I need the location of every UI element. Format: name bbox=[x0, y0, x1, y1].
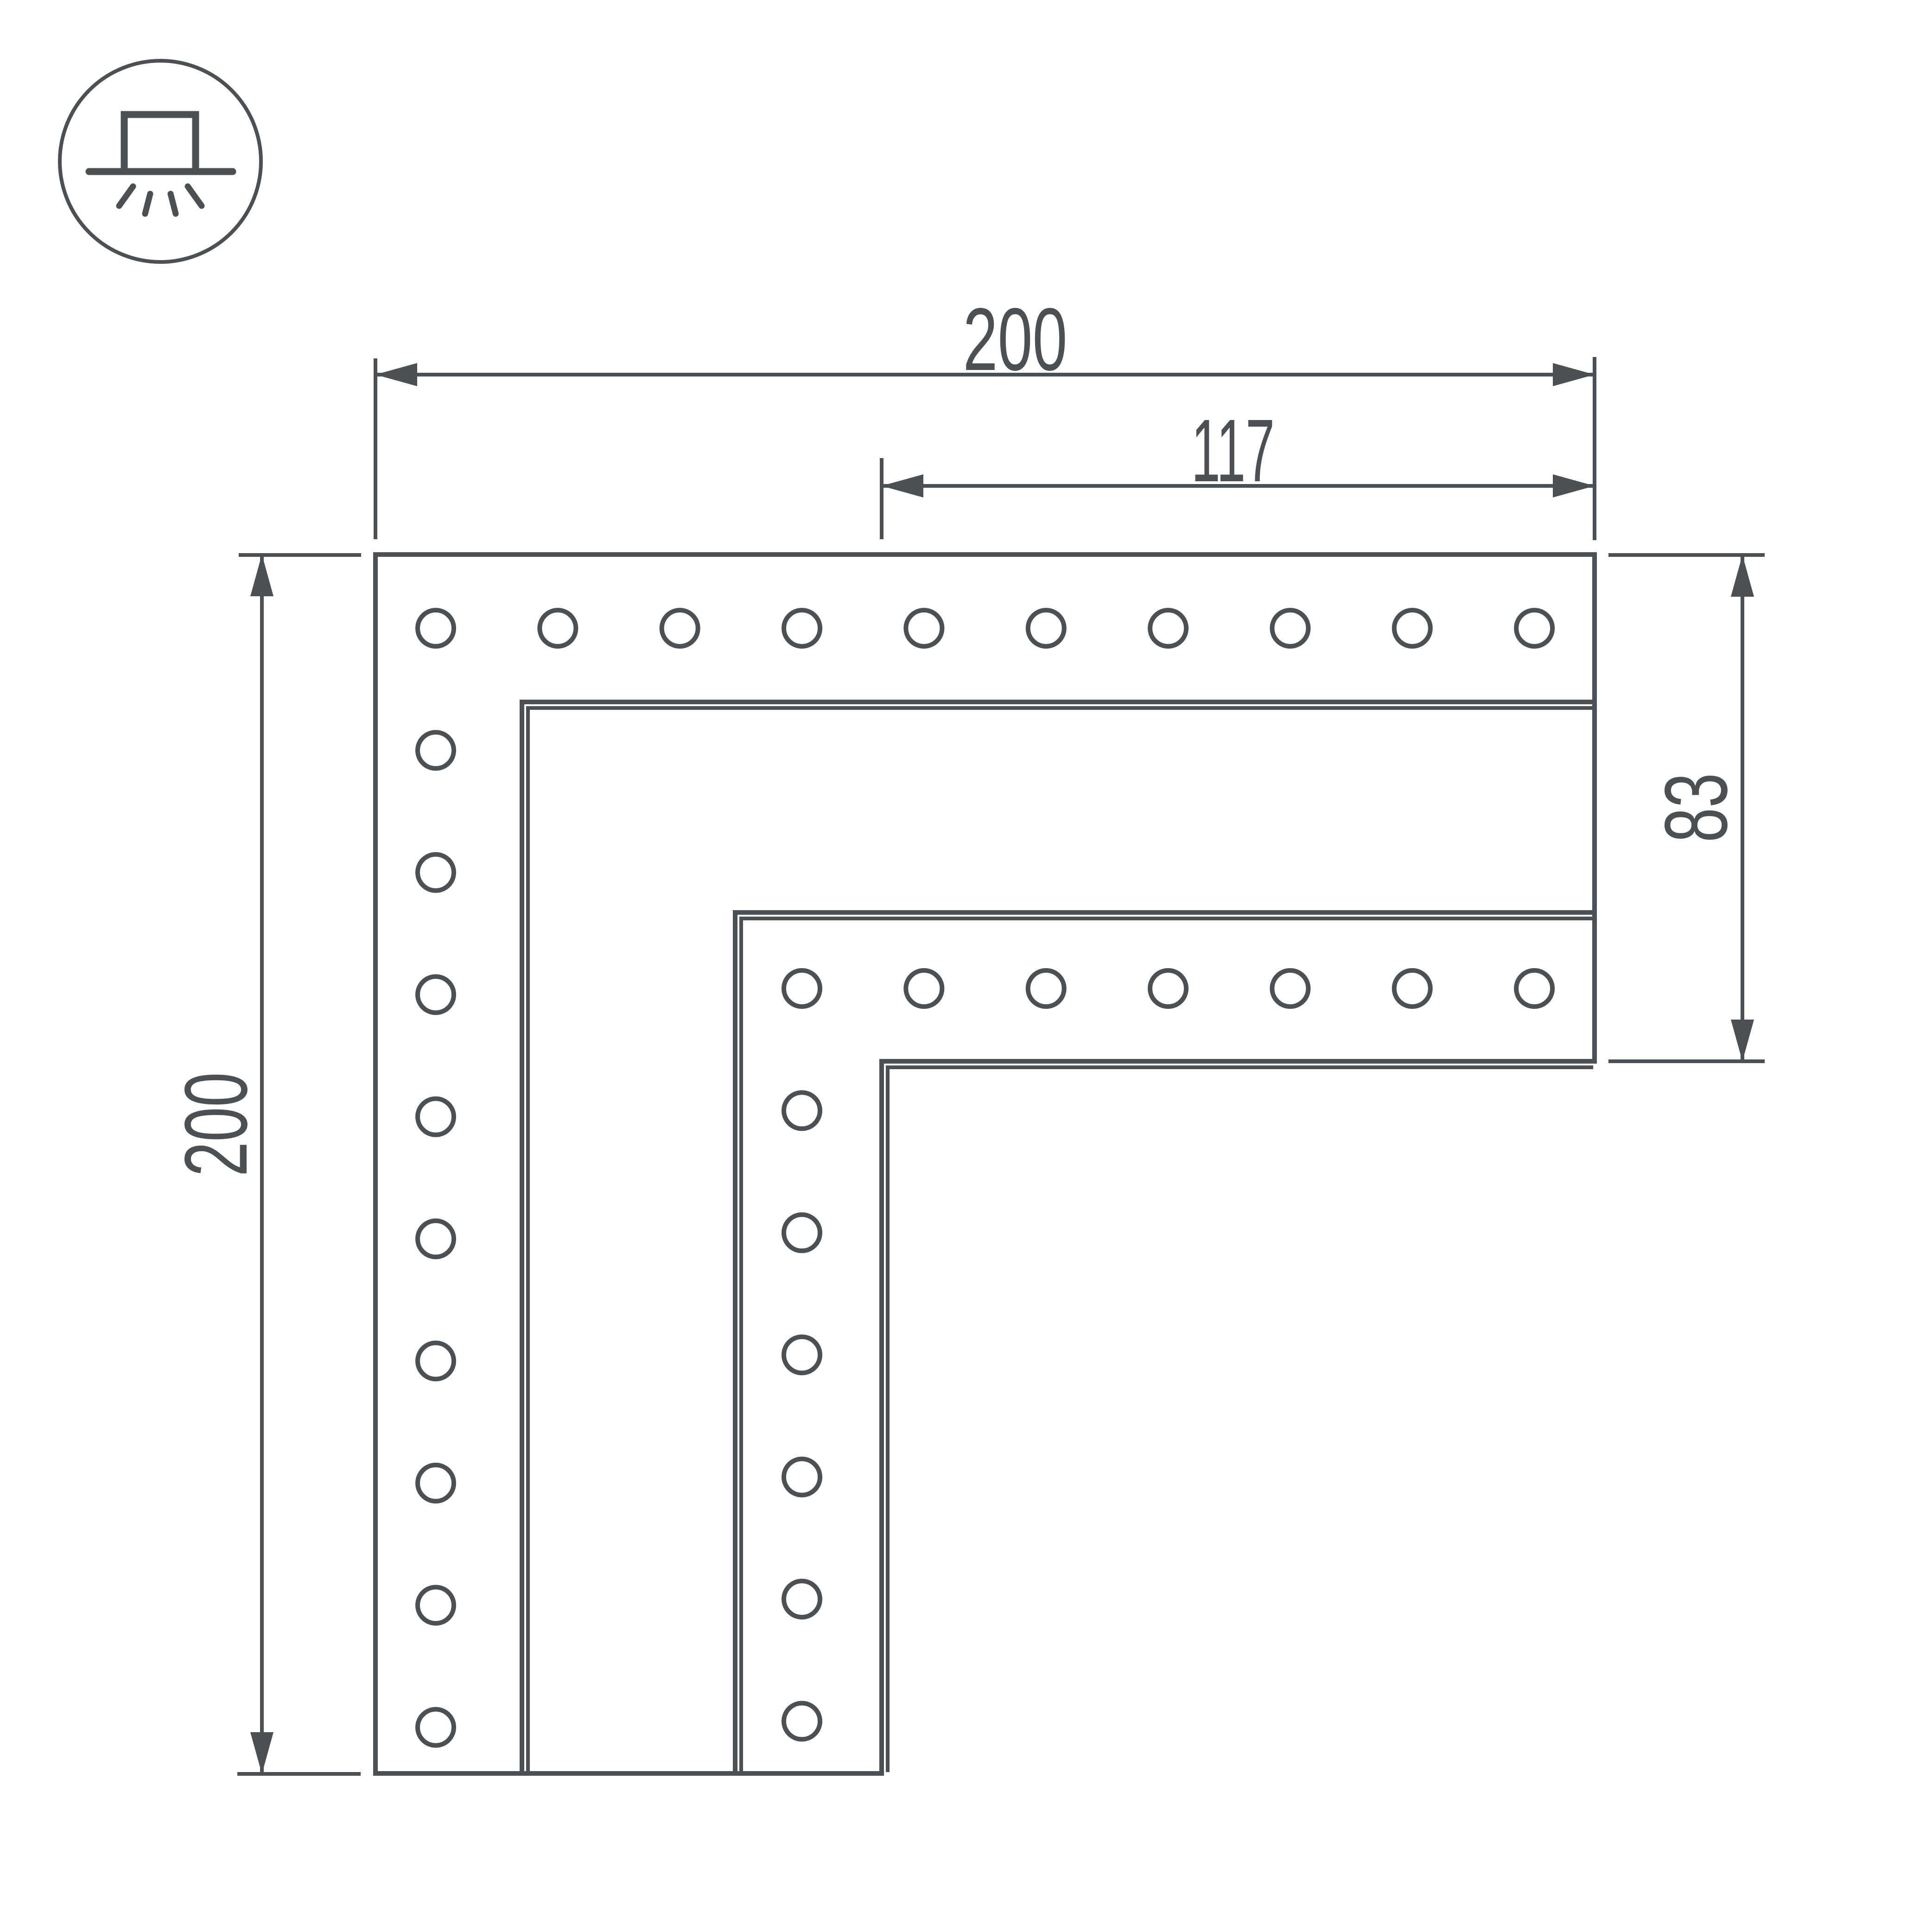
arrowhead-bottom bbox=[1731, 1020, 1754, 1061]
dimension-value-top-width: 200 bbox=[963, 289, 1068, 389]
arrowhead-top bbox=[250, 555, 273, 596]
mounting-hole bbox=[906, 970, 942, 1007]
mounting-hole bbox=[1150, 970, 1186, 1007]
dimension-left-height: 200 bbox=[166, 555, 361, 1774]
luminaire-box-icon bbox=[124, 115, 196, 172]
mounting-hole bbox=[784, 1581, 820, 1617]
mounting-hole bbox=[784, 970, 820, 1007]
mounting-hole bbox=[418, 1099, 454, 1135]
arrowhead-left bbox=[375, 363, 417, 386]
mounting-hole bbox=[1516, 970, 1552, 1007]
light-rays-icon bbox=[119, 186, 202, 214]
mounting-hole bbox=[784, 610, 820, 646]
mounting-hole bbox=[418, 732, 454, 768]
mounting-hole bbox=[1028, 610, 1064, 646]
mounting-hole bbox=[906, 610, 942, 646]
dimension-top-width: 200 bbox=[375, 289, 1595, 540]
mounting-hole bbox=[1028, 970, 1064, 1007]
dimension-value-left-height: 200 bbox=[166, 1072, 266, 1177]
mounting-hole bbox=[418, 1465, 454, 1501]
mounting-hole bbox=[784, 1337, 820, 1373]
technical-drawing-canvas: 200 117 200 83 bbox=[0, 0, 1932, 1932]
outer-outline bbox=[375, 555, 1595, 1773]
arrowhead-bottom bbox=[250, 1732, 273, 1774]
mounting-hole bbox=[1150, 610, 1186, 646]
connector-body bbox=[375, 555, 1595, 1773]
mounting-hole bbox=[784, 1459, 820, 1495]
mounting-hole bbox=[1394, 610, 1430, 646]
arrowhead-right bbox=[1553, 474, 1595, 497]
mounting-hole bbox=[418, 1221, 454, 1257]
dimension-right-height: 83 bbox=[1608, 555, 1765, 1061]
icon-circle-border bbox=[60, 61, 261, 262]
mounting-hole bbox=[662, 610, 698, 646]
mounting-hole bbox=[1272, 970, 1308, 1007]
mounting-hole bbox=[540, 610, 576, 646]
mounting-hole bbox=[418, 1709, 454, 1746]
dimension-value-right-height: 83 bbox=[1646, 773, 1746, 842]
mounting-hole bbox=[784, 1092, 820, 1129]
drawing-page: 200 117 200 83 bbox=[0, 0, 1932, 1932]
mounting-hole bbox=[418, 976, 454, 1013]
mounting-hole bbox=[418, 854, 454, 891]
arrowhead-left bbox=[882, 474, 923, 497]
mounting-hole bbox=[418, 1343, 454, 1379]
dimension-value-inner-width: 117 bbox=[1191, 401, 1275, 500]
mounting-hole bbox=[1394, 970, 1430, 1007]
mounting-hole bbox=[418, 1587, 454, 1623]
mounting-hole bbox=[784, 1703, 820, 1739]
mounting-type-icon bbox=[60, 61, 261, 262]
mounting-hole bbox=[1516, 610, 1552, 646]
arrowhead-top bbox=[1731, 555, 1754, 597]
arrowhead-right bbox=[1553, 363, 1595, 386]
mounting-hole bbox=[784, 1215, 820, 1251]
mounting-hole bbox=[418, 610, 454, 646]
mounting-hole bbox=[1272, 610, 1308, 646]
dimension-inner-width: 117 bbox=[882, 401, 1595, 539]
step-wall-inner-line bbox=[888, 1067, 1593, 1772]
